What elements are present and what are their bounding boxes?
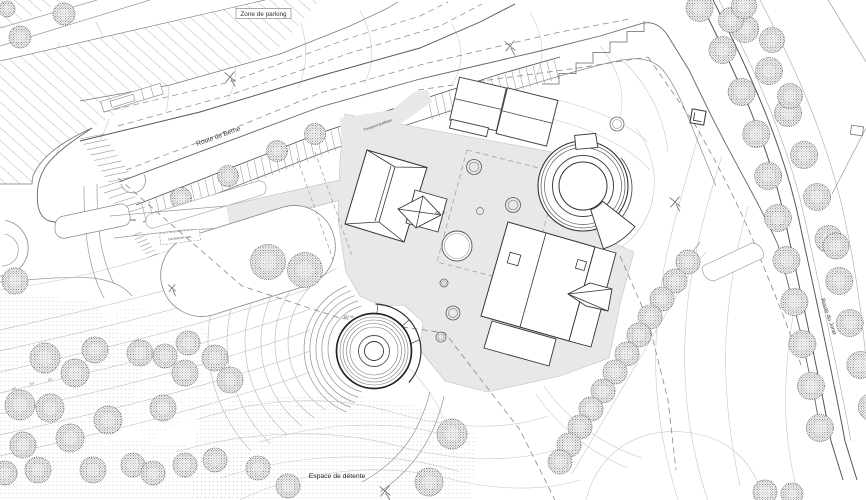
svg-text:807.00: 807.00 (344, 315, 354, 319)
svg-text:Zone de parking: Zone de parking (240, 11, 287, 18)
svg-text:Espace de détente: Espace de détente (309, 473, 366, 480)
svg-text:861.70: 861.70 (435, 211, 445, 215)
